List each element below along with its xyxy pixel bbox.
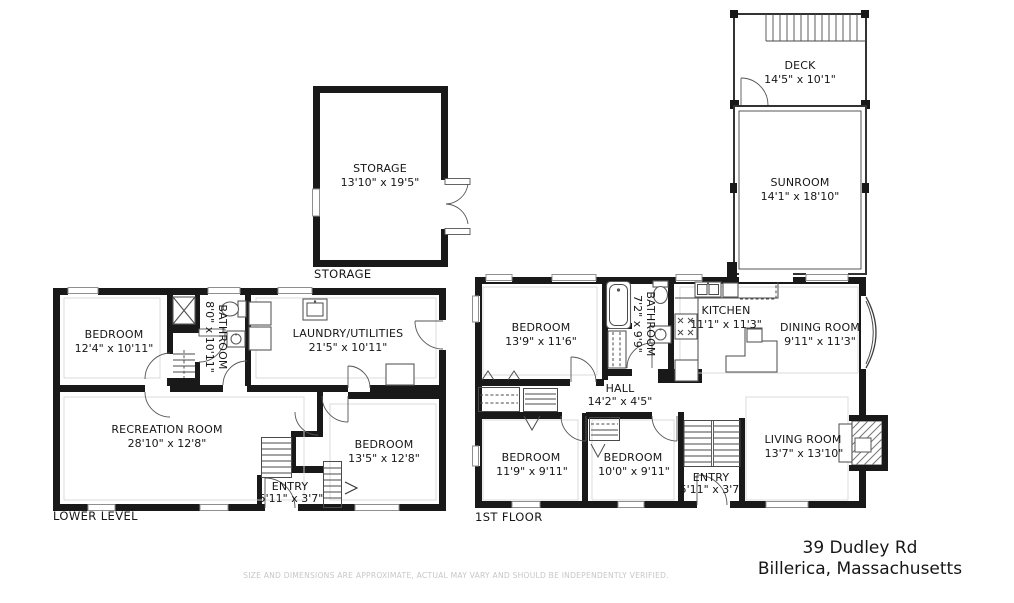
room-dims: 14'5" x 10'1" xyxy=(764,73,836,86)
room-dims: 9'11" x 11'3" xyxy=(784,335,856,348)
room-dims: 13'9" x 11'6" xyxy=(505,335,577,348)
first-floor-caption: 1ST FLOOR xyxy=(475,510,543,524)
room-dims: 13'7" x 13'10" xyxy=(765,447,844,460)
lower-level-plan: BEDROOM 12'4" x 10'11" BATHROOM 8'0" x 1… xyxy=(53,286,448,512)
room-name: DECK xyxy=(784,59,816,72)
room-dims: 10'0" x 9'11" xyxy=(598,465,670,478)
room-dims: 14'1" x 18'10" xyxy=(761,190,840,203)
room-dims: 13'10" x 19'5" xyxy=(341,176,420,189)
floor-plan-page: STORAGE 13'10" x 19'5" DECK 14'5" x 10'1… xyxy=(0,0,1014,603)
room-dims: 12'4" x 10'11" xyxy=(75,342,154,355)
room-name: BATHROOM xyxy=(644,291,657,356)
room-dims: 14'2" x 4'5" xyxy=(588,395,653,408)
room-name: HALL xyxy=(606,382,636,395)
deck: DECK 14'5" x 10'1" xyxy=(730,10,870,109)
address-line2: Billerica, Massachusetts xyxy=(758,559,962,579)
first-floor-plan: BEDROOM 13'9" x 11'6" BATHROOM 7'2" x 9'… xyxy=(471,262,888,509)
rotated-label: BATHROOM 7'2" x 9'9" xyxy=(631,291,657,356)
room-dims: 8'0" x 10'11" xyxy=(203,301,216,373)
room-name: BEDROOM xyxy=(355,438,414,451)
disclaimer-text: SIZE AND DIMENSIONS ARE APPROXIMATE, ACT… xyxy=(243,571,669,580)
room-name: KITCHEN xyxy=(701,304,750,317)
room-dims: 21'5" x 10'11" xyxy=(309,341,388,354)
sunroom: SUNROOM 14'1" x 18'10" xyxy=(730,106,869,274)
room-dims: 7'2" x 9'9" xyxy=(631,295,644,353)
room-name: LIVING ROOM xyxy=(764,433,841,446)
room-dims: 13'5" x 12'8" xyxy=(348,452,420,465)
room-dims: 5'11" x 3'7" xyxy=(259,492,324,505)
room-name: DINING ROOM xyxy=(780,321,860,334)
room-name: BEDROOM xyxy=(512,321,571,334)
room-dims: 11'1" x 11'3" xyxy=(690,318,762,331)
rotated-label: BATHROOM 8'0" x 10'11" xyxy=(203,301,229,373)
laundry-sink-fixture xyxy=(303,299,327,320)
room-name: RECREATION ROOM xyxy=(111,423,222,436)
room-dims: 28'10" x 12'8" xyxy=(128,437,207,450)
kitchen-sink-fixture xyxy=(695,282,721,297)
room-dims: 11'9" x 9'11" xyxy=(496,465,568,478)
address-line1: 39 Dudley Rd xyxy=(803,538,918,558)
bathtub-fixture xyxy=(607,282,631,329)
utility-closet xyxy=(173,297,195,324)
door-leaf-icon xyxy=(445,179,470,185)
utility-box xyxy=(386,364,414,385)
room-name: LAUNDRY/UTILITIES xyxy=(293,327,404,340)
room-name: STORAGE xyxy=(353,162,407,175)
room-name: BEDROOM xyxy=(604,451,663,464)
storage-caption: STORAGE xyxy=(314,267,372,281)
room-name: SUNROOM xyxy=(770,176,829,189)
appliance-box xyxy=(723,283,738,297)
room-name: BEDROOM xyxy=(502,451,561,464)
room-name: BATHROOM xyxy=(216,304,229,369)
lower-level-caption: LOWER LEVEL xyxy=(53,509,138,523)
room-name: BEDROOM xyxy=(85,328,144,341)
room-dims: 5'11" x 3'7" xyxy=(680,483,745,496)
floor-plan-svg: STORAGE 13'10" x 19'5" DECK 14'5" x 10'1… xyxy=(0,0,1014,603)
door-leaf-icon xyxy=(445,229,470,235)
storage-building: STORAGE 13'10" x 19'5" xyxy=(311,90,470,264)
